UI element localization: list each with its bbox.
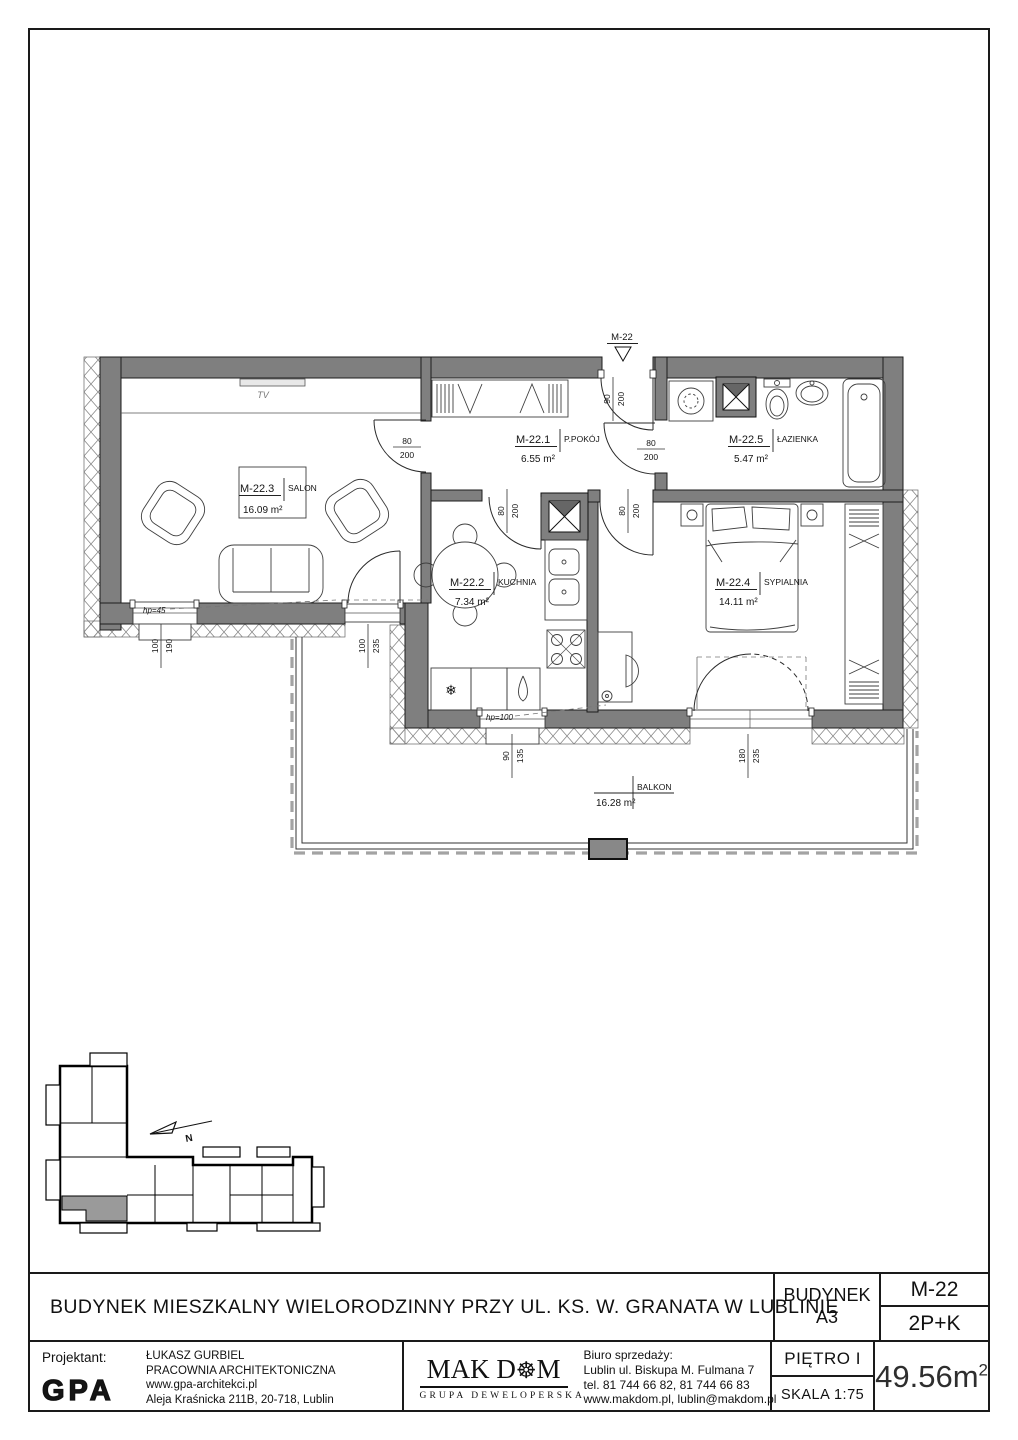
sales-office-label: Biuro sprzedaży:	[584, 1348, 777, 1363]
balcony	[292, 637, 917, 859]
title-block: BUDYNEK MIESZKALNY WIELORODZINNY PRZY UL…	[30, 1272, 988, 1412]
dim-bath-door: 80 200	[637, 438, 665, 462]
svg-text:80: 80	[646, 438, 656, 448]
sales-office-phone: tel. 81 744 66 82, 81 744 66 83	[584, 1378, 777, 1393]
svg-text:190: 190	[164, 639, 174, 653]
project-title: BUDYNEK MIESZKALNY WIELORODZINNY PRZY UL…	[50, 1296, 839, 1319]
room-label-salon: M-22.3 SALON 16.09 m²	[239, 478, 317, 516]
dim-salon-balcony-door: 100 235	[357, 624, 381, 668]
designer-website: www.gpa-architekci.pl	[146, 1378, 336, 1393]
dim-bedroom-balcony-door: 180 235	[737, 734, 761, 778]
building-label: BUDYNEK	[783, 1285, 870, 1307]
svg-text:GPA: GPA	[42, 1375, 115, 1406]
building-value: A3	[816, 1307, 838, 1329]
svg-text:200: 200	[644, 452, 658, 462]
stove	[547, 630, 585, 668]
room-label-balkon: BALKON 16.28 m²	[594, 776, 674, 809]
svg-text:90: 90	[602, 394, 612, 404]
svg-text:BALKON: BALKON	[637, 782, 672, 792]
unit-marker: M-22	[607, 332, 638, 361]
gpa-logo: GPA	[40, 1374, 140, 1406]
unit-cell: M-22 2P+K	[881, 1274, 988, 1340]
svg-text:M-22: M-22	[611, 332, 633, 343]
svg-text:14.11 m²: 14.11 m²	[719, 597, 758, 608]
bed	[706, 504, 798, 632]
dim-bedroom-door: 80 200	[617, 489, 641, 533]
svg-text:ŁAZIENKA: ŁAZIENKA	[777, 434, 818, 444]
floor-label: PIĘTRO I	[772, 1342, 873, 1377]
svg-text:80: 80	[496, 506, 506, 516]
svg-text:hp=100: hp=100	[486, 713, 513, 722]
nightstand	[681, 504, 703, 526]
svg-text:N: N	[185, 1133, 194, 1145]
washing-machine	[669, 381, 713, 421]
svg-text:TV: TV	[257, 390, 269, 400]
svg-text:80: 80	[402, 436, 412, 446]
svg-text:M-22.1: M-22.1	[516, 434, 550, 446]
svg-text:235: 235	[751, 749, 761, 763]
toilet	[764, 379, 790, 419]
svg-text:M-22.5: M-22.5	[729, 434, 763, 446]
scale-label: SKALA 1:75	[772, 1377, 873, 1412]
nightstand	[801, 504, 823, 526]
armchair	[320, 474, 395, 549]
designer-cell: Projektant: GPA ŁUKASZ GURBIEL PRACOWNIA…	[30, 1342, 404, 1412]
makdom-tagline: GRUPA DEWELOPERSKA	[420, 1391, 568, 1401]
makdom-name: MAK D	[427, 1354, 516, 1384]
floor-plan-page: { "plan": { "marker": "M-22", "tv": "TV"…	[0, 0, 1018, 1440]
svg-text:16.09 m²: 16.09 m²	[243, 505, 283, 516]
svg-text:100: 100	[357, 639, 367, 653]
building-overview	[46, 1053, 324, 1233]
svg-text:SYPIALNIA: SYPIALNIA	[764, 577, 808, 587]
svg-text:SALON: SALON	[288, 483, 317, 493]
dim-salon-door: 80 200	[393, 436, 421, 460]
sales-office-web: www.makdom.pl, lublin@makdom.pl	[584, 1392, 777, 1407]
tv-cabinet: TV	[240, 379, 305, 400]
makdom-name-end: M	[536, 1354, 560, 1384]
total-area: 49.56m2	[875, 1359, 988, 1395]
svg-text:M-22.4: M-22.4	[716, 577, 750, 589]
desk	[598, 632, 638, 702]
svg-text:90: 90	[501, 751, 511, 761]
svg-text:hp=45: hp=45	[143, 606, 166, 615]
svg-text:200: 200	[631, 504, 641, 518]
svg-text:KUCHNIA: KUCHNIA	[498, 577, 537, 587]
balcony-pillar	[589, 839, 627, 859]
svg-text:6.55 m²: 6.55 m²	[521, 454, 556, 465]
svg-text:200: 200	[400, 450, 414, 460]
room-label-ppokoj: M-22.1 P.POKÓJ 6.55 m²	[515, 429, 600, 465]
apartment-plan-drawing: TV	[0, 0, 1018, 1270]
svg-text:16.28 m²: 16.28 m²	[596, 798, 636, 809]
room-label-lazienka: M-22.5 ŁAZIENKA 5.47 m²	[728, 429, 818, 465]
wheel-icon: ☸	[516, 1358, 537, 1384]
bath-shaft	[716, 377, 756, 417]
bathtub	[843, 379, 885, 487]
svg-text:235: 235	[371, 639, 381, 653]
designer-studio: PRACOWNIA ARCHITEKTONICZNA	[146, 1364, 336, 1379]
kitchen-shaft	[541, 493, 588, 540]
armchair	[136, 476, 211, 551]
floor-scale-cell: PIĘTRO I SKALA 1:75	[772, 1342, 875, 1412]
unit-layout: 2P+K	[881, 1307, 988, 1340]
sales-office-address: Lublin ul. Biskupa M. Fulmana 7	[584, 1363, 777, 1378]
developer-cell: MAK D☸M GRUPA DEWELOPERSKA Biuro sprzeda…	[404, 1342, 773, 1412]
designer-label: Projektant:	[42, 1350, 107, 1365]
svg-text:200: 200	[510, 504, 520, 518]
bedroom-wardrobe	[845, 504, 883, 704]
unit-number: M-22	[881, 1274, 988, 1307]
svg-text:7.34 m²: 7.34 m²	[455, 597, 490, 608]
dim-kitchen-door: 80 200	[496, 489, 520, 533]
svg-text:180: 180	[737, 749, 747, 763]
building-cell: BUDYNEK A3	[775, 1274, 881, 1340]
kitchen-sink-counter	[545, 540, 587, 620]
fridge: ❄	[431, 668, 471, 710]
svg-text:P.POKÓJ: P.POKÓJ	[564, 434, 600, 444]
north-arrow: N	[150, 1121, 212, 1145]
svg-text:M-22.2: M-22.2	[450, 577, 484, 589]
designer-address: Aleja Kraśnicka 211B, 20-718, Lublin	[146, 1393, 336, 1408]
svg-text:M-22.3: M-22.3	[240, 483, 274, 495]
kitchen-sink-unit	[507, 668, 540, 710]
sofa	[219, 545, 323, 603]
project-title-cell: BUDYNEK MIESZKALNY WIELORODZINNY PRZY UL…	[30, 1274, 775, 1340]
svg-text:5.47 m²: 5.47 m²	[734, 454, 769, 465]
svg-text:❄: ❄	[445, 682, 457, 698]
designer-name: ŁUKASZ GURBIEL	[146, 1349, 336, 1364]
bedroom-balcony-door	[687, 654, 814, 728]
bathroom-door	[604, 423, 655, 474]
svg-text:100: 100	[150, 639, 160, 653]
dim-entrance: 90 200	[602, 377, 626, 421]
svg-text:135: 135	[515, 749, 525, 763]
svg-text:200: 200	[616, 392, 626, 406]
bath-sink	[796, 381, 828, 405]
room-label-sypialnia: M-22.4 SYPIALNIA 14.11 m²	[715, 572, 808, 608]
kitchen-cabinet	[471, 668, 507, 710]
makdom-logo: MAK D☸M GRUPA DEWELOPERSKA	[420, 1354, 568, 1401]
hall-wardrobe	[432, 380, 568, 417]
svg-text:80: 80	[617, 506, 627, 516]
area-cell: 49.56m2	[875, 1342, 988, 1412]
salon-door	[374, 420, 426, 472]
